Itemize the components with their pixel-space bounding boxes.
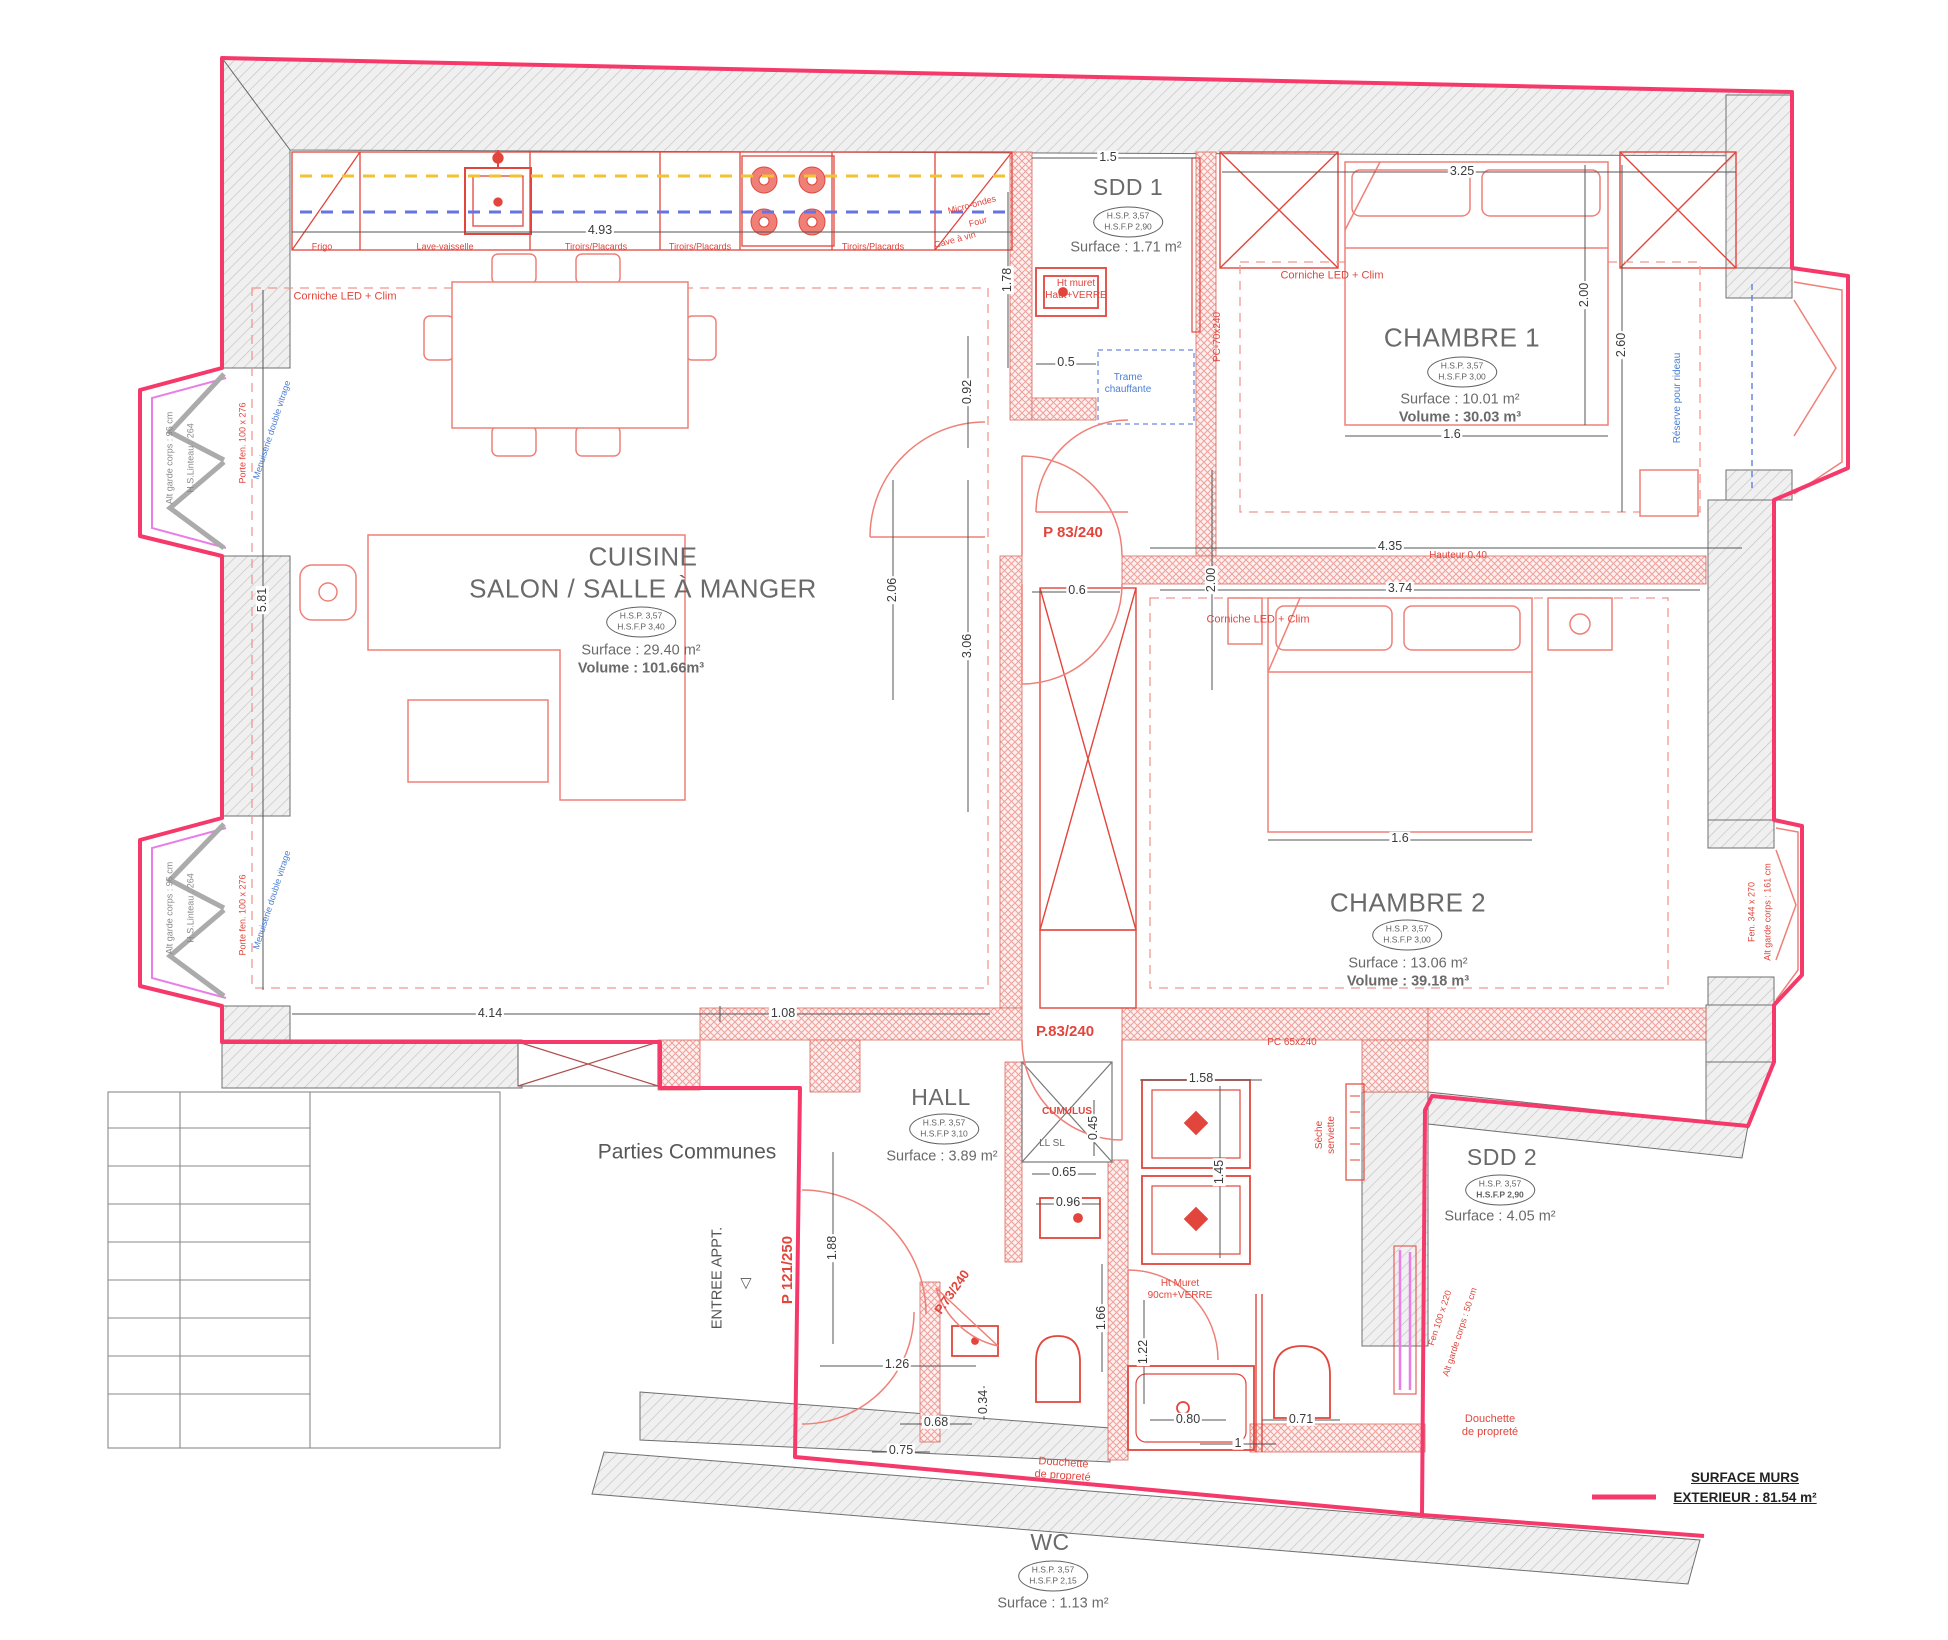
- surface-wc: Surface : 1.13 m²: [997, 1595, 1108, 1612]
- label-portefen-bay2: Porte fen. 100 x 276: [238, 874, 249, 955]
- dim-kitchen-width: 4.93: [586, 224, 614, 237]
- dim-sdd1-width: 1.5: [1097, 151, 1118, 164]
- label-p83-hall: P.83/240: [1036, 1023, 1094, 1041]
- dim-muret-h2: 1.22: [1137, 1338, 1150, 1366]
- label-parties-communes: Parties Communes: [598, 1139, 777, 1164]
- dim-chambre1-bed-len: 2.00: [1578, 281, 1591, 309]
- label-seche-serviette: Sècheserviette: [1314, 1116, 1338, 1154]
- legend-line2: EXTERIEUR : 81.54 m²: [1655, 1488, 1835, 1508]
- surface-sdd1: Surface : 1.71 m²: [1070, 239, 1181, 256]
- label-entree-appt: ENTREE APPT.: [709, 1227, 726, 1329]
- dim-sdd2-top: 1.58: [1187, 1072, 1215, 1085]
- label-pc65: PC 65x240: [1267, 1037, 1316, 1049]
- legend: SURFACE MURS EXTERIEUR : 81.54 m²: [1655, 1468, 1835, 1509]
- label-douchette-bottom: Douchettede propreté: [1034, 1455, 1092, 1485]
- label-pc70: PC-70x240: [1212, 312, 1224, 362]
- dim-door-offset: 0.6: [1066, 584, 1087, 597]
- surface-hall: Surface : 3.89 m²: [886, 1148, 997, 1165]
- surface-chambre1: Surface : 10.01 m²: [1400, 391, 1519, 408]
- legend-line1: SURFACE MURS: [1655, 1468, 1835, 1488]
- label-p83-chambre: P 83/240: [1043, 524, 1103, 542]
- label-tiroirs-1: Tiroirs/Placards: [565, 242, 627, 253]
- room-title-cuisine: CUISINE: [589, 541, 698, 572]
- dim-muret-h: 1.66: [1095, 1304, 1108, 1332]
- label-douchette-right: Douchettede propreté: [1462, 1413, 1518, 1439]
- label-p121: P 121/250: [779, 1236, 797, 1304]
- dim-wc2-w: 0.71: [1287, 1413, 1315, 1426]
- dim-salon-right: 3.06: [961, 632, 974, 660]
- dim-chambre2-bed-w: 1.6: [1389, 832, 1410, 845]
- label-cumulus: CUMULUS: [1042, 1106, 1092, 1118]
- room-subtitle-cuisine: SALON / SALLE À MANGER: [469, 573, 817, 604]
- dim-chambre1-bed-w: 1.6: [1441, 428, 1462, 441]
- dim-chambre1-height: 2.60: [1615, 331, 1628, 359]
- label-muret-sdd2: Ht Muret90cm+VERRE: [1148, 1278, 1213, 1302]
- kitchen-counter: [292, 150, 1012, 250]
- dim-salon-height: 5.81: [256, 586, 269, 614]
- room-title-hall: HALL: [911, 1084, 971, 1112]
- dim-corridor: 0.92: [961, 378, 974, 406]
- entree-arrow: ▽: [740, 1275, 751, 1292]
- label-lave-vaisselle: Lave-vaisselle: [416, 242, 473, 253]
- hsp-oval-sdd2: H.S.P. 3,57H.S.F.P 2,90: [1465, 1175, 1535, 1206]
- dim-cumulus-w: 0.65: [1050, 1166, 1078, 1179]
- hsp-oval-chambre2: H.S.P. 3,57H.S.F.P 3,00: [1372, 920, 1442, 951]
- dim-chambre1-width: 3.25: [1448, 165, 1476, 178]
- label-linteau-bay2: H.S.Linteau : 264: [186, 873, 197, 943]
- dim-sdd2-one: 1: [1233, 1437, 1244, 1450]
- dim-hall-door: 1.26: [883, 1358, 911, 1371]
- hsp-oval-wc: H.S.P. 3,57H.S.F.P 2,15: [1018, 1561, 1088, 1592]
- room-title-sdd1: SDD 1: [1093, 174, 1163, 202]
- dim-sdd2-left: 1.45: [1213, 1158, 1226, 1186]
- dim-wc-d: 0.34: [977, 1388, 990, 1416]
- floorplan-linework: [0, 0, 1948, 1640]
- surface-cuisine: Surface : 29.40 m²: [581, 642, 700, 659]
- stairs: [108, 1092, 500, 1448]
- dim-shower-w: 0.80: [1174, 1413, 1202, 1426]
- dim-cumulus-d: 0.45: [1087, 1114, 1100, 1142]
- dim-wall-bottom: 3.74: [1386, 582, 1414, 595]
- furniture: [300, 162, 1698, 832]
- surface-sdd2: Surface : 4.05 m²: [1444, 1208, 1555, 1225]
- label-tiroirs-3: Tiroirs/Placards: [842, 242, 904, 253]
- room-title-sdd2: SDD 2: [1467, 1144, 1537, 1172]
- dim-wc-front: 0.75: [887, 1444, 915, 1457]
- hsp-oval-cuisine: H.S.P. 3,57H.S.F.P 3,40: [606, 607, 676, 638]
- dim-wall-top: 4.35: [1376, 540, 1404, 553]
- volume-chambre1: Volume : 30.03 m³: [1399, 409, 1521, 426]
- room-title-chambre2: CHAMBRE 2: [1330, 887, 1486, 918]
- label-trame-chauffante: Tramechauffante: [1105, 372, 1152, 396]
- hsp-oval-sdd1: H.S.P. 3,57H.S.F.P 2,90: [1093, 207, 1163, 238]
- hsp-oval-hall: H.S.P. 3,57H.S.F.P 3,10: [909, 1114, 979, 1145]
- label-muret-sdd1: Ht muretHaut+VERRE: [1045, 278, 1106, 302]
- label-linteau-bay1: H.S.Linteau : 264: [186, 423, 197, 493]
- label-corniche-chambre2: Corniche LED + Clim: [1206, 613, 1309, 626]
- room-title-chambre1: CHAMBRE 1: [1384, 322, 1540, 353]
- dim-entry: 1.88: [826, 1234, 839, 1262]
- label-hauteur: Hauteur 0.40: [1429, 550, 1487, 562]
- dim-sdd1-gap: 0.5: [1055, 356, 1076, 369]
- dim-chambre2-bed-len: 2.00: [1205, 566, 1218, 594]
- label-garde96-bay2: Alt garde corps : 96 cm: [165, 862, 176, 955]
- label-tiroirs-2: Tiroirs/Placards: [669, 242, 731, 253]
- label-ll-sl: LL SL: [1039, 1138, 1065, 1150]
- volume-chambre2: Volume : 39.18 m³: [1347, 973, 1469, 990]
- dim-dressing-h: 2.06: [886, 576, 899, 604]
- label-fen344: Fen. 344 x 270: [1747, 882, 1758, 942]
- dim-hall-top: 1.08: [769, 1007, 797, 1020]
- label-garde96-bay1: Alt garde corps : 96 cm: [165, 412, 176, 505]
- dim-sdd1-depth: 1.78: [1001, 266, 1014, 294]
- dim-lavabo-w: 0.96: [1054, 1196, 1082, 1209]
- label-frigo: Frigo: [312, 242, 333, 253]
- label-garde161: Alt garde corps : 161 cm: [1763, 863, 1774, 961]
- surface-chambre2: Surface : 13.06 m²: [1348, 955, 1467, 972]
- dim-wc-w: 0.68: [922, 1416, 950, 1429]
- volume-cuisine: Volume : 101.66m³: [578, 660, 704, 677]
- floor-plan: CUISINE SALON / SALLE À MANGER H.S.P. 3,…: [0, 0, 1948, 1640]
- room-title-wc: WC: [1030, 1529, 1069, 1557]
- label-portefen-bay1: Porte fen. 100 x 276: [238, 402, 249, 483]
- label-reserve-rideau: Réserve pour rideau: [1672, 353, 1684, 444]
- label-corniche-salon: Corniche LED + Clim: [293, 290, 396, 303]
- label-corniche-chambre1: Corniche LED + Clim: [1280, 269, 1383, 282]
- dim-salon-width: 4.14: [476, 1007, 504, 1020]
- hsp-oval-chambre1: H.S.P. 3,57H.S.F.P 3,00: [1427, 357, 1497, 388]
